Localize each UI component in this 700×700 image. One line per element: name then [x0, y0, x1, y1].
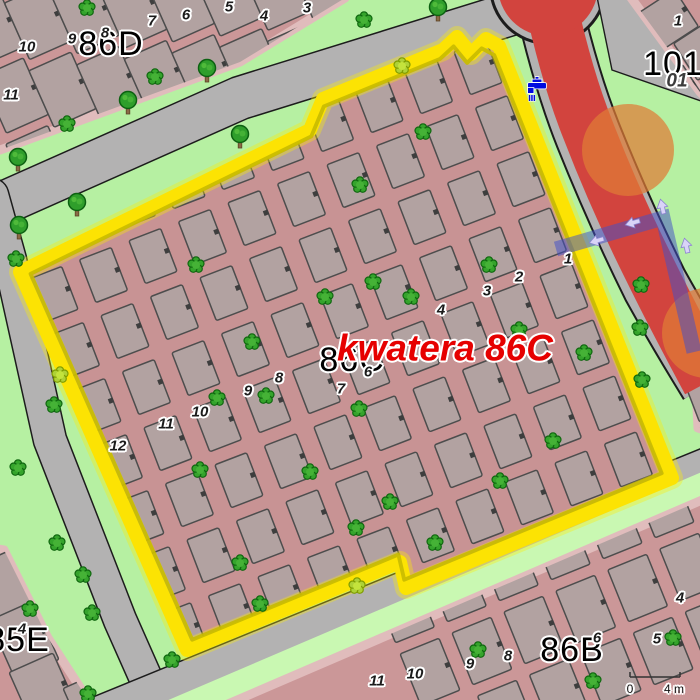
map-canvas[interactable]: 86D10186C85E86Bkwatera 86C01111098765431…	[0, 0, 700, 700]
zone-circle	[582, 104, 674, 196]
map-geometry	[0, 0, 700, 700]
